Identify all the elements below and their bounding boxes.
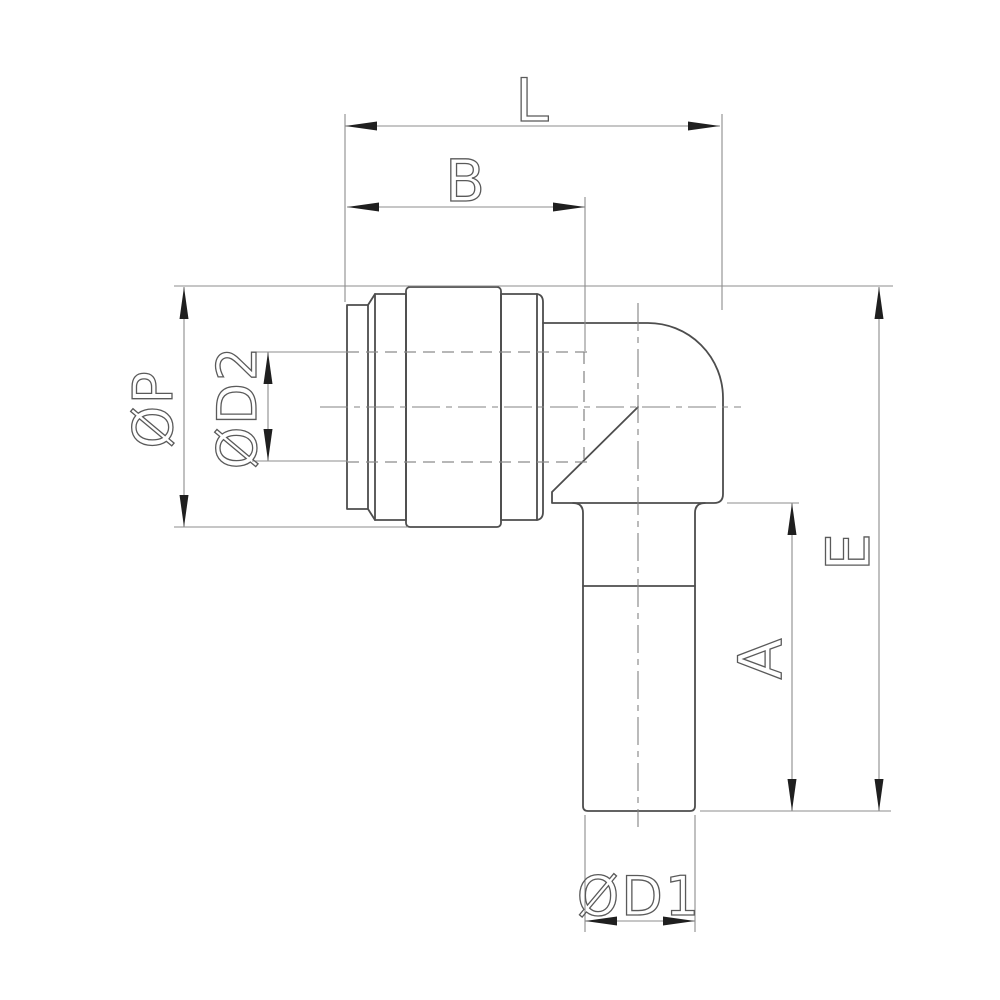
dim-label-E: E	[814, 531, 884, 571]
elbow-body	[543, 323, 723, 503]
arrowhead-E-top	[875, 287, 884, 319]
arrowhead-E-bottom	[875, 779, 884, 811]
dim-label-D1: ØD1	[577, 865, 701, 928]
dim-label-D2: ØD2	[206, 345, 269, 469]
stem	[573, 503, 705, 811]
elbow-fitting-drawing: L B ØP ØD2 E A ØD1	[0, 0, 1000, 1000]
dim-label-L: L	[515, 66, 550, 136]
arrowhead-L-left	[345, 122, 377, 131]
arrowhead-B-right	[553, 203, 585, 212]
part-outline	[347, 287, 723, 811]
arrowhead-A-top	[788, 503, 797, 535]
dim-label-B: B	[445, 147, 487, 215]
centerlines	[320, 303, 741, 827]
arrowhead-P-bottom	[180, 495, 189, 527]
arrowhead-P-top	[180, 287, 189, 319]
dimension-lines	[174, 114, 893, 932]
arrowhead-L-right	[688, 122, 720, 131]
dimension-labels: L B ØP ØD2 E A ØD1	[122, 66, 884, 928]
arrowhead-B-left	[347, 203, 379, 212]
dim-label-P: ØP	[122, 369, 185, 448]
arrowhead-A-bottom	[788, 779, 797, 811]
dim-label-A: A	[726, 636, 796, 679]
drawing-sheet: L B ØP ØD2 E A ØD1	[0, 0, 1000, 1000]
arrowheads	[180, 122, 884, 926]
